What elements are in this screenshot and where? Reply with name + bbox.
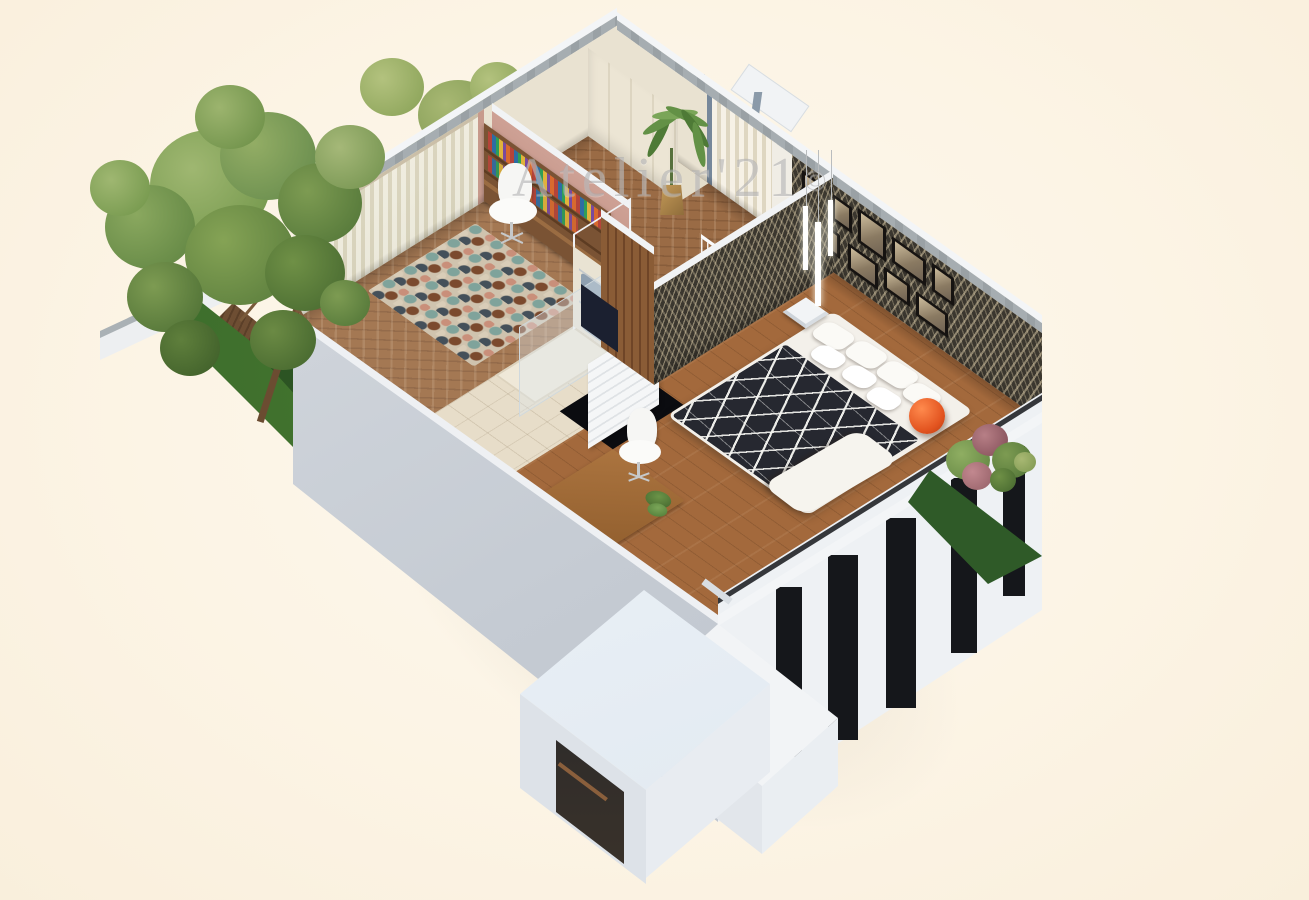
pendant-tube [803,206,808,270]
gallery-frame [832,193,852,233]
floorplan-render: Atelier'21© [0,0,1309,900]
orange-ball [909,398,945,434]
window-slit [828,555,858,740]
pendant-tube [828,200,833,256]
copyright-icon: © [804,164,827,197]
watermark: Atelier'21© [512,146,826,210]
window-slit [886,518,916,708]
pendant-tube [815,222,821,306]
watermark-text: Atelier'21 [512,147,804,209]
gallery-frame [932,263,954,307]
